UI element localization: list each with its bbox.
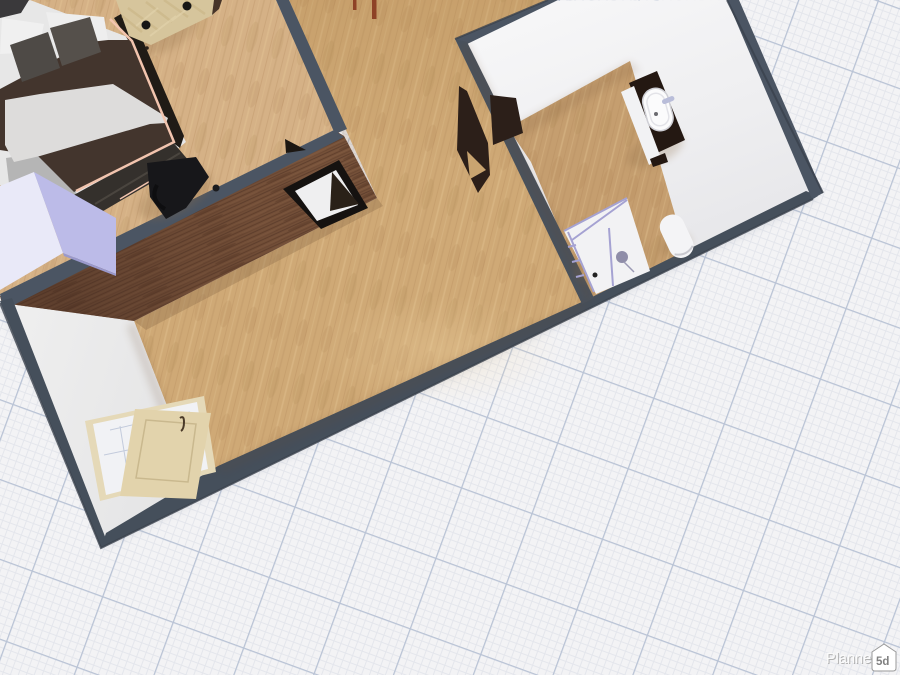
svg-text:5d: 5d bbox=[876, 656, 889, 668]
svg-text:Planner: Planner bbox=[826, 651, 876, 667]
